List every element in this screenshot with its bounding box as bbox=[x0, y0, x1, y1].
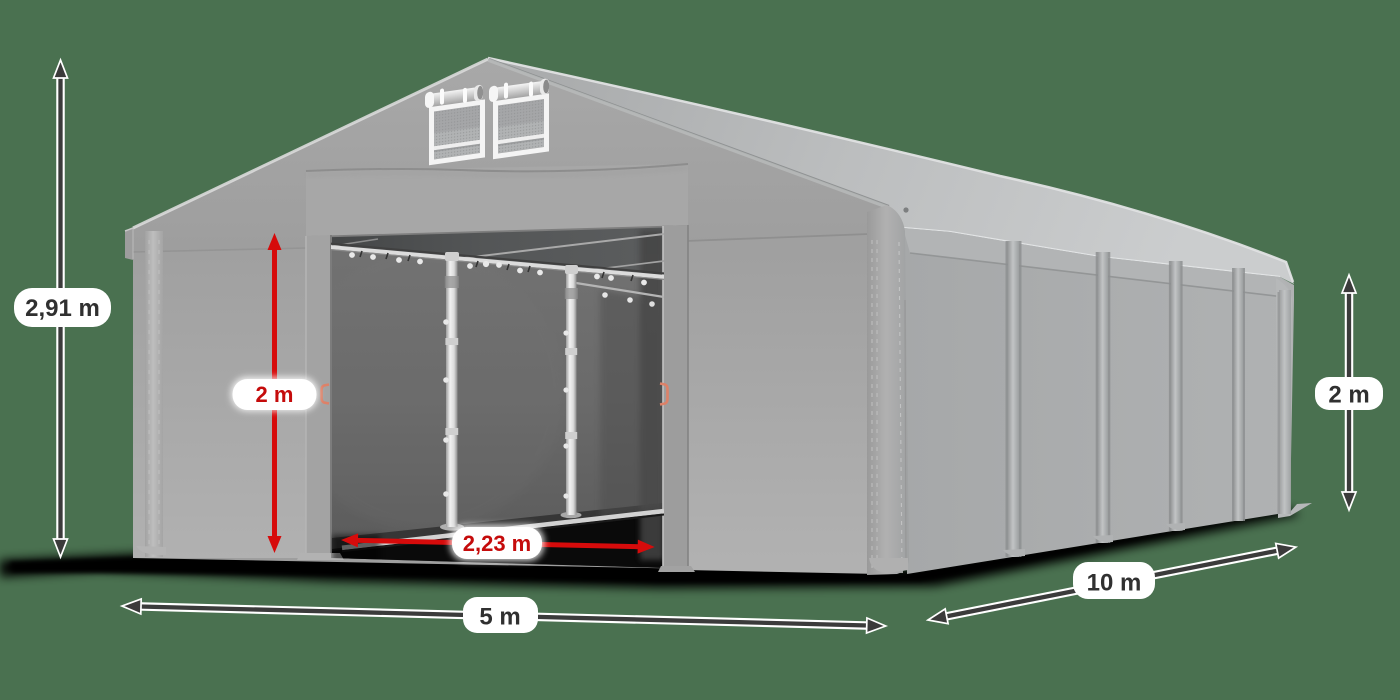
svg-text:2,91 m: 2,91 m bbox=[25, 295, 100, 322]
svg-text:10 m: 10 m bbox=[1087, 570, 1142, 597]
svg-text:5 m: 5 m bbox=[479, 604, 520, 631]
svg-text:2 m: 2 m bbox=[1328, 382, 1369, 409]
svg-text:2,23 m: 2,23 m bbox=[463, 531, 532, 556]
svg-text:2 m: 2 m bbox=[256, 382, 294, 407]
